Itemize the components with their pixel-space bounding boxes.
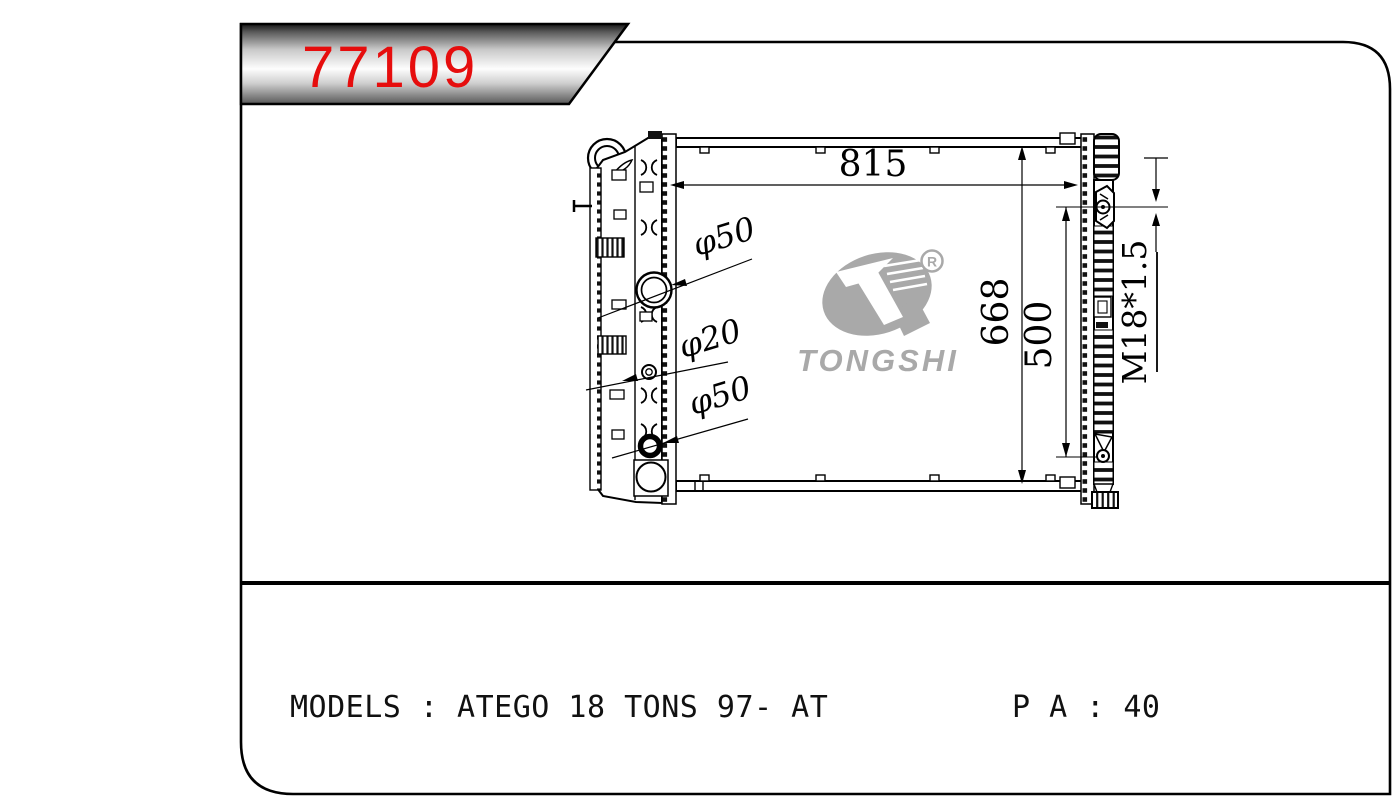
dimension-thread: M18*1.5 — [1115, 158, 1168, 384]
dim-core-height-label: 668 — [976, 278, 1017, 347]
thread-spec-label: M18*1.5 — [1115, 240, 1154, 385]
left-tank — [574, 131, 676, 504]
bottom-port-label: φ50 — [684, 368, 755, 423]
bottom-port-ring-icon — [641, 437, 660, 456]
dim-port-spacing-label: 500 — [1019, 301, 1060, 370]
arrow-up-icon — [1018, 146, 1026, 160]
spec-pa: P A : 40 — [1012, 688, 1365, 728]
arrow-up-icon — [1062, 207, 1070, 221]
brand-name: TONGSHI — [797, 343, 959, 378]
spec-models: MODELS : ATEGO 18 TONS 97- AT — [290, 688, 828, 728]
tank-cap — [1094, 134, 1119, 180]
right-tank — [1081, 134, 1119, 508]
registered-letter: R — [927, 254, 937, 270]
left-crimp-seam — [662, 134, 676, 504]
bottom-outlet-icon — [637, 463, 666, 492]
drain-connector — [1092, 492, 1118, 508]
dim-core-width-label: 815 — [839, 144, 908, 185]
dimension-815: 815 — [670, 144, 1078, 189]
arrow-right-icon — [1064, 181, 1078, 189]
arrow-down-icon — [1152, 189, 1160, 202]
arrow-down-icon — [1062, 443, 1070, 457]
mid-port-label: φ20 — [674, 311, 745, 366]
watermark-logo: R TONGSHI — [797, 239, 959, 378]
spec-column-left: MODELS : ATEGO 18 TONS 97- AT CORE SIZE … — [290, 608, 828, 810]
spec-column-right: P A : 40 DPI : OEM : 940 500 03 03 NISSE… — [1012, 608, 1365, 810]
right-crimp-seam — [1081, 134, 1094, 504]
part-number-ribbon: 77109 — [241, 24, 628, 104]
part-number: 77109 — [302, 35, 478, 100]
catalog-sheet: 77109 R TONGSHI — [0, 0, 1399, 810]
top-port-label: φ50 — [688, 209, 759, 264]
